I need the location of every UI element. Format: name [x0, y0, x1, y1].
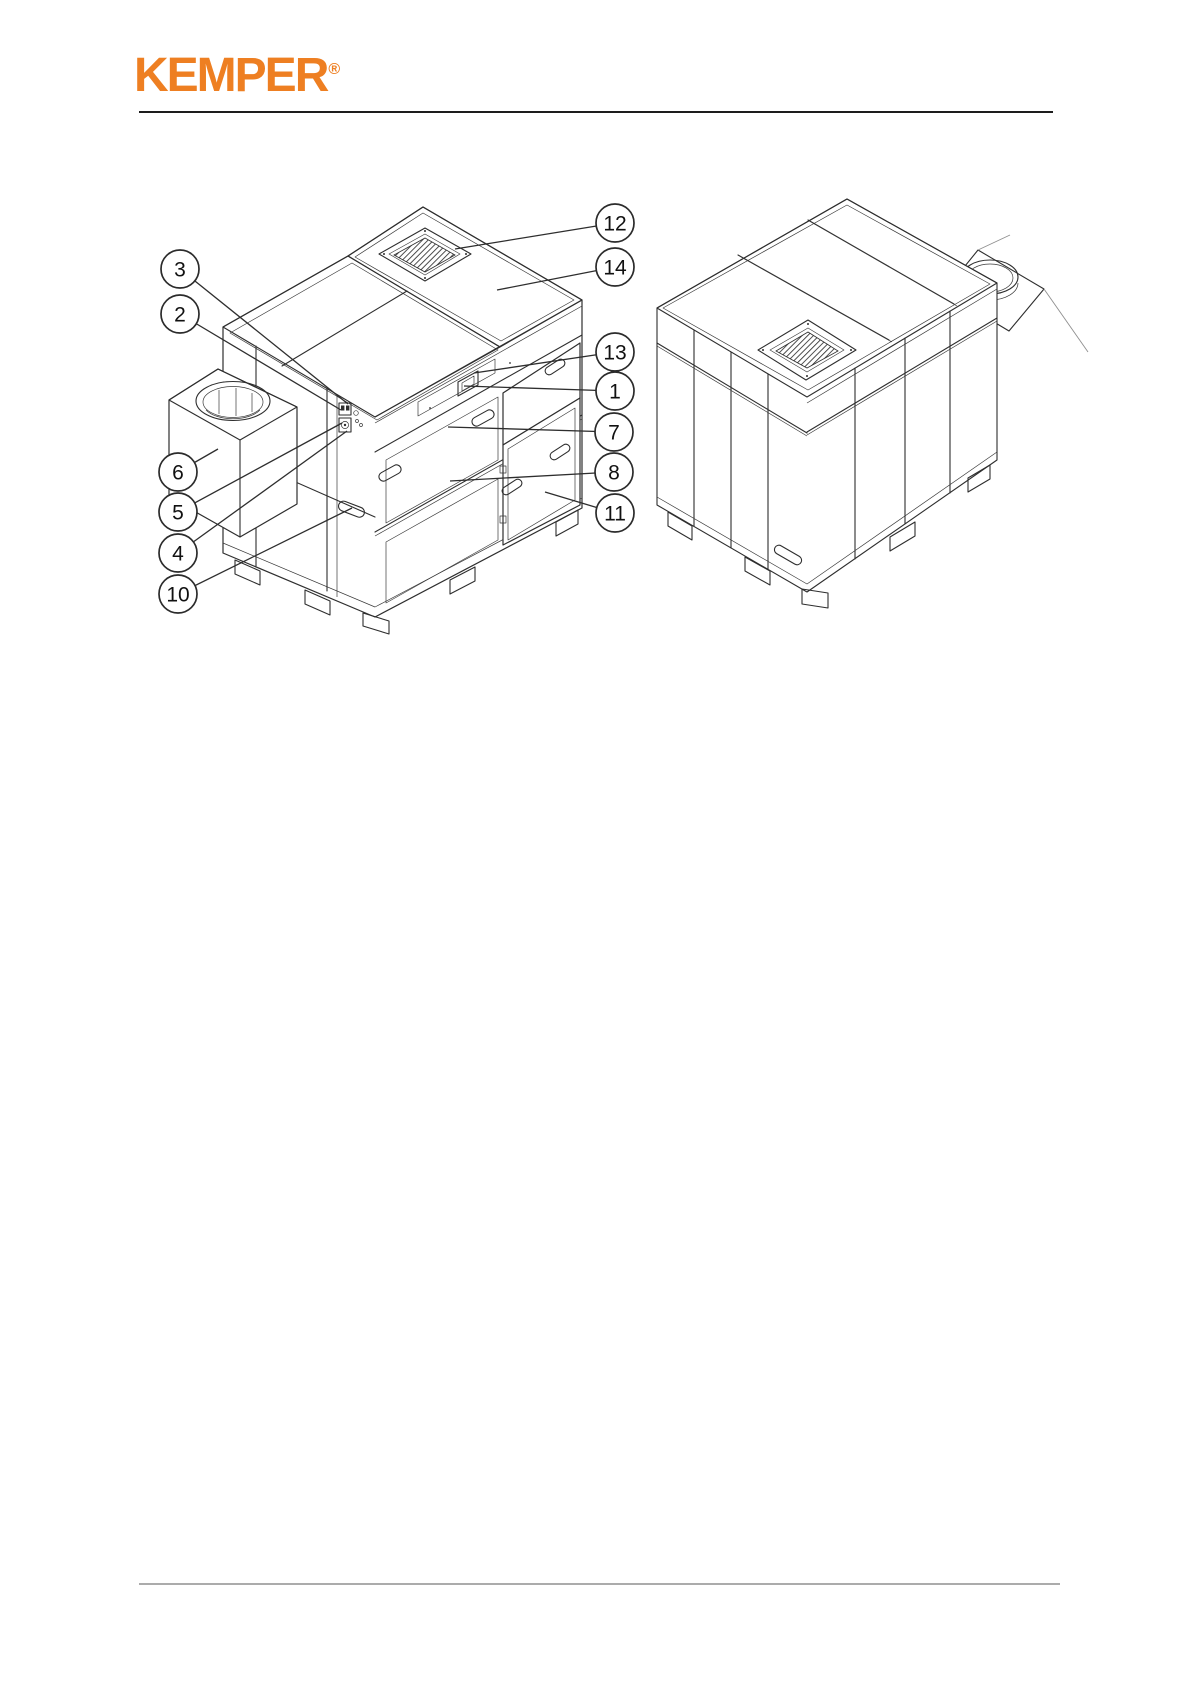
svg-text:7: 7 — [608, 422, 620, 445]
callout-10: 10 — [159, 575, 197, 613]
callout-leader-line-12 — [455, 223, 615, 249]
document-page: KEMPER® — [0, 0, 1191, 1684]
svg-text:14: 14 — [603, 257, 627, 280]
figure-svg: 121413178113265410 — [0, 0, 1191, 1684]
callout-1: 1 — [596, 372, 634, 410]
callout-12: 12 — [596, 204, 634, 242]
right-machine-drawing — [657, 199, 1088, 608]
footer-divider-line — [139, 1583, 1060, 1585]
svg-text:5: 5 — [172, 502, 184, 525]
callout-5: 5 — [159, 493, 197, 531]
callout-6: 6 — [159, 453, 197, 491]
svg-text:2: 2 — [174, 304, 186, 327]
svg-text:8: 8 — [608, 462, 620, 485]
svg-text:13: 13 — [603, 342, 626, 365]
callout-11: 11 — [596, 494, 634, 532]
callout-8: 8 — [595, 453, 633, 491]
svg-text:1: 1 — [609, 381, 621, 404]
svg-text:4: 4 — [172, 543, 184, 566]
callout-2: 2 — [161, 295, 199, 333]
callout-3: 3 — [161, 250, 199, 288]
svg-text:12: 12 — [603, 213, 626, 236]
callout-13: 13 — [596, 333, 634, 371]
svg-text:11: 11 — [604, 503, 626, 526]
callout-7: 7 — [595, 413, 633, 451]
callout-4: 4 — [159, 534, 197, 572]
svg-text:3: 3 — [174, 259, 186, 282]
svg-text:10: 10 — [166, 584, 189, 607]
callout-14: 14 — [596, 248, 634, 286]
svg-text:6: 6 — [172, 462, 184, 485]
